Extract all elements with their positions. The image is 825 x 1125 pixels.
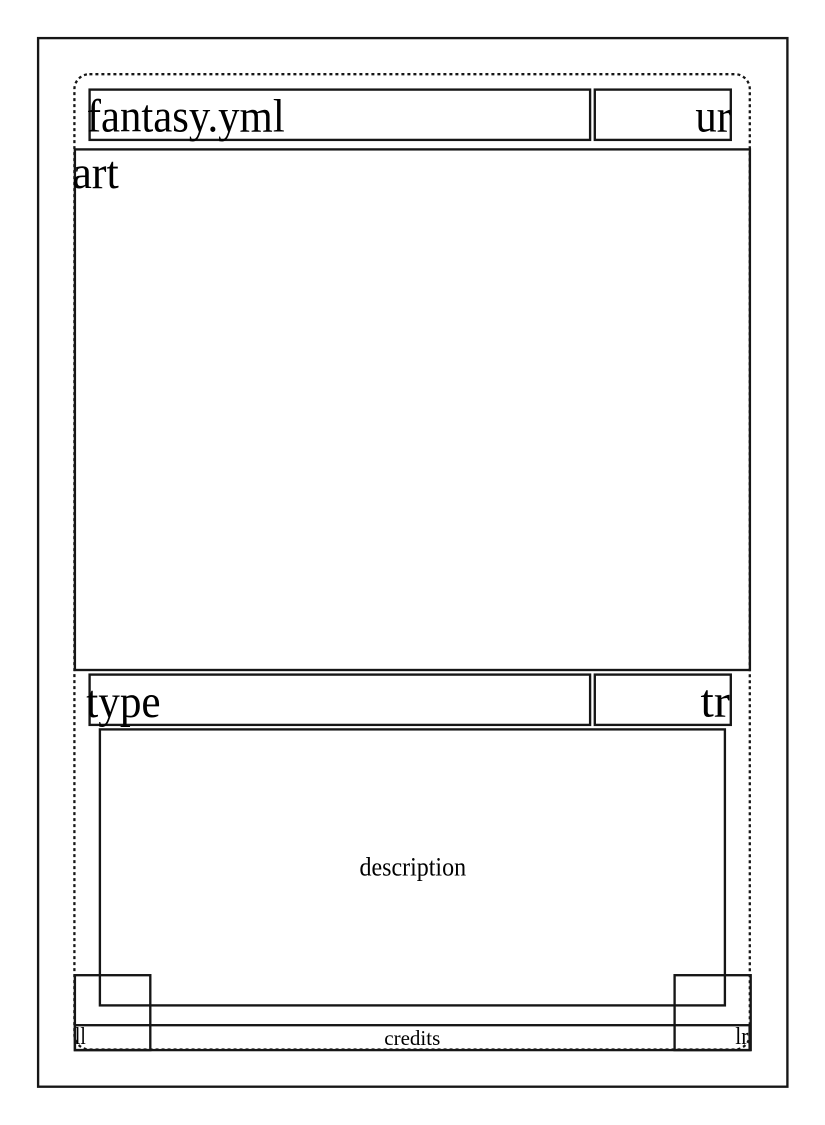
svg-text:tr: tr — [701, 676, 730, 727]
svg-text:credits: credits — [384, 1026, 440, 1050]
svg-text:art: art — [72, 146, 119, 199]
svg-text:ur: ur — [695, 89, 731, 141]
svg-text:lr: lr — [735, 1023, 749, 1049]
svg-text:description: description — [360, 854, 467, 882]
svg-text:type: type — [86, 676, 160, 728]
svg-text:fantasy.yml: fantasy.yml — [87, 90, 285, 142]
